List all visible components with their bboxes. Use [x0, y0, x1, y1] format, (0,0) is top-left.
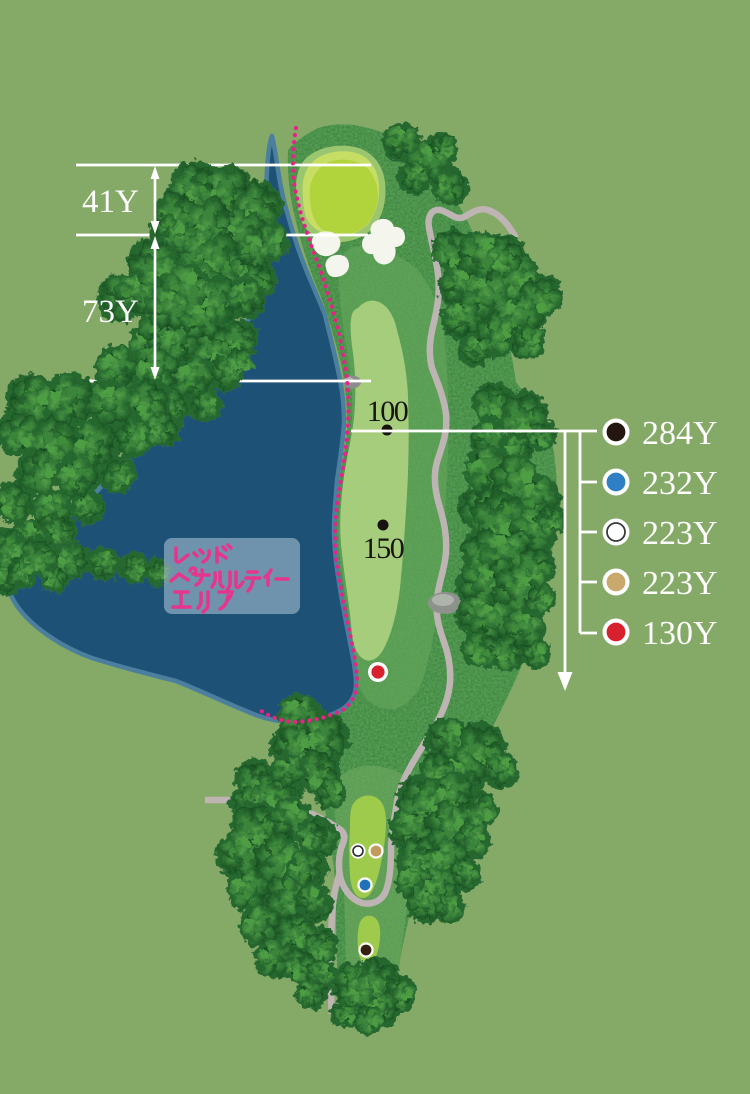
svg-text:130Y: 130Y — [642, 615, 718, 652]
svg-text:223Y: 223Y — [642, 565, 718, 602]
svg-text:150: 150 — [363, 532, 404, 565]
svg-text:41Y: 41Y — [82, 184, 139, 220]
svg-text:232Y: 232Y — [642, 465, 718, 502]
svg-text:100: 100 — [367, 395, 408, 428]
svg-text:73Y: 73Y — [82, 294, 139, 330]
svg-text:223Y: 223Y — [642, 515, 718, 552]
svg-text:284Y: 284Y — [642, 415, 718, 452]
